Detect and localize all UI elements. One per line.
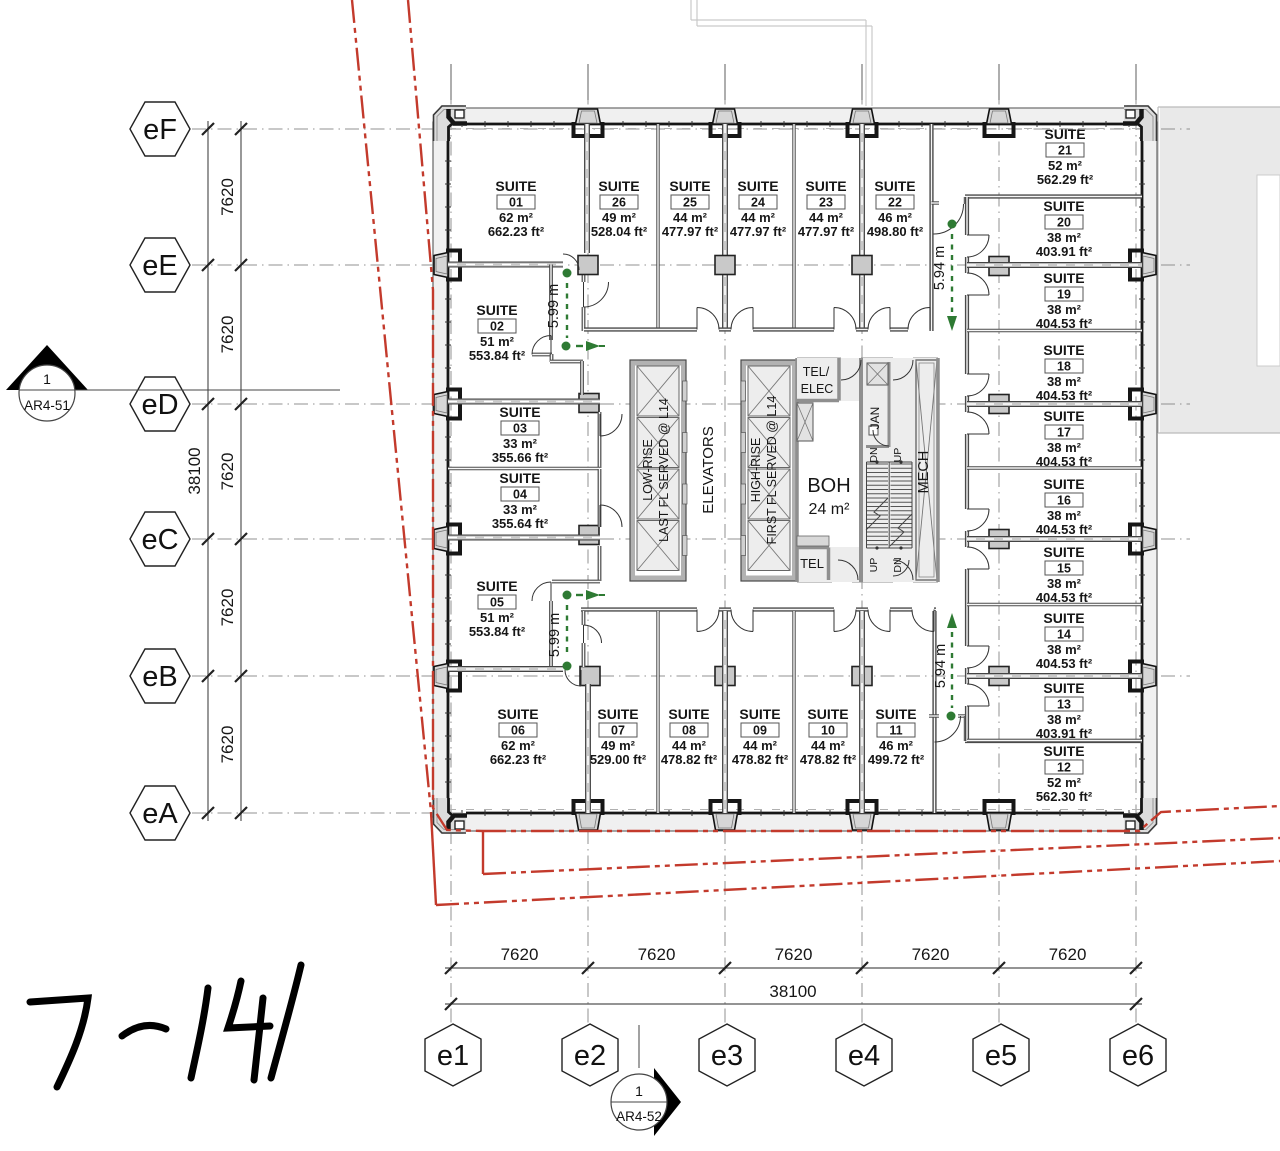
svg-text:16: 16: [1057, 494, 1071, 508]
svg-text:44 m²: 44 m²: [741, 210, 776, 225]
svg-text:SUITE: SUITE: [597, 706, 638, 722]
svg-text:SUITE: SUITE: [1043, 544, 1084, 560]
svg-text:SUITE: SUITE: [495, 178, 536, 194]
svg-text:08: 08: [682, 724, 696, 738]
svg-text:477.97 ft²: 477.97 ft²: [662, 224, 719, 239]
svg-text:7620: 7620: [638, 945, 676, 964]
svg-text:404.53 ft²: 404.53 ft²: [1036, 454, 1093, 469]
svg-text:499.72 ft²: 499.72 ft²: [868, 752, 925, 767]
svg-text:478.82 ft²: 478.82 ft²: [732, 752, 789, 767]
svg-text:44 m²: 44 m²: [743, 738, 778, 753]
svg-text:SUITE: SUITE: [1043, 342, 1084, 358]
svg-text:04: 04: [513, 488, 527, 502]
svg-text:49 m²: 49 m²: [602, 210, 637, 225]
svg-text:19: 19: [1057, 288, 1071, 302]
svg-text:SUITE: SUITE: [499, 404, 540, 420]
svg-text:33 m²: 33 m²: [503, 436, 538, 451]
svg-text:eD: eD: [141, 389, 178, 421]
svg-text:38100: 38100: [769, 982, 816, 1001]
svg-text:403.91 ft²: 403.91 ft²: [1036, 726, 1093, 741]
svg-text:eA: eA: [142, 798, 178, 830]
svg-text:5.94 m: 5.94 m: [933, 644, 949, 688]
svg-text:528.04 ft²: 528.04 ft²: [591, 224, 648, 239]
svg-text:11: 11: [889, 724, 902, 738]
svg-text:SUITE: SUITE: [1043, 476, 1084, 492]
svg-text:24: 24: [751, 196, 765, 210]
svg-text:07: 07: [611, 724, 625, 738]
svg-text:46 m²: 46 m²: [878, 210, 913, 225]
svg-text:ELEC: ELEC: [801, 382, 834, 396]
svg-text:eE: eE: [142, 250, 177, 282]
svg-text:BOH: BOH: [807, 475, 850, 497]
svg-text:38 m²: 38 m²: [1047, 712, 1082, 727]
svg-text:e2: e2: [574, 1040, 606, 1072]
svg-text:52 m²: 52 m²: [1047, 775, 1082, 790]
svg-text:7620: 7620: [775, 945, 813, 964]
svg-text:SUITE: SUITE: [1044, 126, 1085, 142]
svg-text:38100: 38100: [185, 447, 204, 494]
svg-text:SUITE: SUITE: [737, 178, 778, 194]
svg-text:SUITE: SUITE: [1043, 408, 1084, 424]
svg-text:SUITE: SUITE: [1043, 743, 1084, 759]
svg-text:e1: e1: [437, 1040, 469, 1072]
svg-text:02: 02: [490, 320, 504, 334]
svg-text:SUITE: SUITE: [499, 470, 540, 486]
svg-text:38 m²: 38 m²: [1047, 576, 1082, 591]
svg-text:7620: 7620: [218, 453, 237, 491]
svg-text:5.99 m: 5.99 m: [547, 613, 563, 657]
svg-text:477.97 ft²: 477.97 ft²: [798, 224, 855, 239]
svg-text:51 m²: 51 m²: [480, 334, 515, 349]
svg-text:SUITE: SUITE: [1043, 198, 1084, 214]
svg-text:TEL: TEL: [800, 556, 824, 571]
svg-text:38 m²: 38 m²: [1047, 374, 1082, 389]
svg-text:09: 09: [753, 724, 767, 738]
svg-text:24 m²: 24 m²: [809, 501, 851, 518]
svg-text:SUITE: SUITE: [805, 178, 846, 194]
svg-text:5.94 m: 5.94 m: [932, 246, 948, 290]
svg-text:404.53 ft²: 404.53 ft²: [1036, 388, 1093, 403]
svg-text:12: 12: [1057, 761, 1071, 775]
svg-text:7620: 7620: [218, 589, 237, 627]
svg-text:22: 22: [888, 196, 902, 210]
svg-text:38 m²: 38 m²: [1047, 508, 1082, 523]
svg-text:404.53 ft²: 404.53 ft²: [1036, 656, 1093, 671]
svg-text:01: 01: [509, 196, 523, 210]
svg-text:SUITE: SUITE: [476, 302, 517, 318]
svg-text:SUITE: SUITE: [1043, 270, 1084, 286]
svg-text:JAN: JAN: [868, 407, 882, 430]
svg-text:7620: 7620: [501, 945, 539, 964]
svg-text:eC: eC: [141, 524, 178, 556]
svg-text:7620: 7620: [218, 316, 237, 354]
svg-text:478.82 ft²: 478.82 ft²: [661, 752, 718, 767]
svg-text:AR4-51: AR4-51: [24, 398, 70, 413]
svg-text:662.23 ft²: 662.23 ft²: [490, 752, 547, 767]
svg-text:SUITE: SUITE: [598, 178, 639, 194]
svg-text:46 m²: 46 m²: [879, 738, 914, 753]
svg-text:1: 1: [635, 1083, 643, 1099]
svg-text:562.29 ft²: 562.29 ft²: [1037, 172, 1094, 187]
svg-text:478.82 ft²: 478.82 ft²: [800, 752, 857, 767]
svg-text:DN: DN: [868, 447, 880, 462]
svg-text:38 m²: 38 m²: [1047, 642, 1082, 657]
svg-text:05: 05: [490, 596, 504, 610]
svg-text:404.53 ft²: 404.53 ft²: [1036, 522, 1093, 537]
svg-text:03: 03: [513, 422, 527, 436]
svg-text:TEL/: TEL/: [803, 365, 830, 379]
svg-text:7620: 7620: [1049, 945, 1087, 964]
svg-text:10: 10: [821, 724, 835, 738]
svg-text:UP: UP: [892, 448, 904, 463]
svg-text:18: 18: [1057, 360, 1071, 374]
svg-text:SUITE: SUITE: [476, 578, 517, 594]
svg-text:44 m²: 44 m²: [811, 738, 846, 753]
svg-text:SUITE: SUITE: [497, 706, 538, 722]
svg-text:MECH: MECH: [916, 451, 932, 494]
svg-text:SUITE: SUITE: [1043, 680, 1084, 696]
svg-text:403.91 ft²: 403.91 ft²: [1036, 244, 1093, 259]
svg-text:e5: e5: [985, 1040, 1017, 1072]
svg-text:eF: eF: [143, 114, 177, 146]
svg-text:477.97 ft²: 477.97 ft²: [730, 224, 787, 239]
svg-text:UP: UP: [868, 558, 880, 573]
svg-text:404.53 ft²: 404.53 ft²: [1036, 316, 1093, 331]
svg-text:38 m²: 38 m²: [1047, 302, 1082, 317]
svg-text:52 m²: 52 m²: [1048, 158, 1083, 173]
svg-text:SUITE: SUITE: [1043, 610, 1084, 626]
svg-text:15: 15: [1057, 562, 1071, 576]
svg-text:404.53 ft²: 404.53 ft²: [1036, 590, 1093, 605]
svg-text:49 m²: 49 m²: [601, 738, 636, 753]
svg-text:SUITE: SUITE: [807, 706, 848, 722]
svg-text:SUITE: SUITE: [669, 178, 710, 194]
svg-text:23: 23: [819, 196, 833, 210]
svg-text:26: 26: [612, 196, 626, 210]
svg-text:44 m²: 44 m²: [673, 210, 708, 225]
svg-text:33 m²: 33 m²: [503, 502, 538, 517]
svg-text:FIRST FL SERVED @ L14: FIRST FL SERVED @ L14: [765, 396, 779, 545]
svg-text:7620: 7620: [218, 726, 237, 764]
svg-text:SUITE: SUITE: [739, 706, 780, 722]
svg-text:14: 14: [1057, 628, 1071, 642]
svg-text:662.23 ft²: 662.23 ft²: [488, 224, 545, 239]
svg-text:e4: e4: [848, 1040, 880, 1072]
svg-text:SUITE: SUITE: [668, 706, 709, 722]
svg-text:44 m²: 44 m²: [809, 210, 844, 225]
svg-text:eB: eB: [142, 661, 177, 693]
svg-text:SUITE: SUITE: [875, 706, 916, 722]
svg-text:e3: e3: [711, 1040, 743, 1072]
svg-text:ELEVATORS: ELEVATORS: [700, 426, 717, 514]
svg-text:SUITE: SUITE: [874, 178, 915, 194]
svg-text:62 m²: 62 m²: [501, 738, 536, 753]
svg-text:44 m²: 44 m²: [672, 738, 707, 753]
svg-text:LAST FL SERVED @ L14: LAST FL SERVED @ L14: [657, 398, 671, 542]
svg-text:51 m²: 51 m²: [480, 610, 515, 625]
svg-text:38 m²: 38 m²: [1047, 230, 1082, 245]
svg-text:e6: e6: [1122, 1040, 1154, 1072]
svg-text:5.99 m: 5.99 m: [546, 284, 562, 328]
svg-text:553.84 ft²: 553.84 ft²: [469, 624, 526, 639]
svg-text:7620: 7620: [218, 178, 237, 216]
svg-text:25: 25: [683, 196, 697, 210]
svg-text:355.66 ft²: 355.66 ft²: [492, 450, 549, 465]
svg-text:62 m²: 62 m²: [499, 210, 534, 225]
svg-text:06: 06: [511, 724, 525, 738]
svg-text:498.80 ft²: 498.80 ft²: [867, 224, 924, 239]
svg-text:1: 1: [43, 371, 51, 387]
svg-text:20: 20: [1057, 216, 1071, 230]
svg-text:13: 13: [1057, 698, 1071, 712]
svg-text:355.64 ft²: 355.64 ft²: [492, 516, 549, 531]
svg-text:7620: 7620: [912, 945, 950, 964]
svg-text:21: 21: [1058, 144, 1072, 158]
svg-text:HIGH-RISE: HIGH-RISE: [749, 438, 763, 503]
svg-text:38 m²: 38 m²: [1047, 440, 1082, 455]
svg-text:AR4-52: AR4-52: [616, 1109, 662, 1124]
svg-text:529.00 ft²: 529.00 ft²: [590, 752, 647, 767]
svg-text:562.30 ft²: 562.30 ft²: [1036, 789, 1093, 804]
svg-text:17: 17: [1057, 426, 1071, 440]
svg-text:LOW-RISE: LOW-RISE: [641, 439, 655, 501]
svg-text:553.84 ft²: 553.84 ft²: [469, 348, 526, 363]
